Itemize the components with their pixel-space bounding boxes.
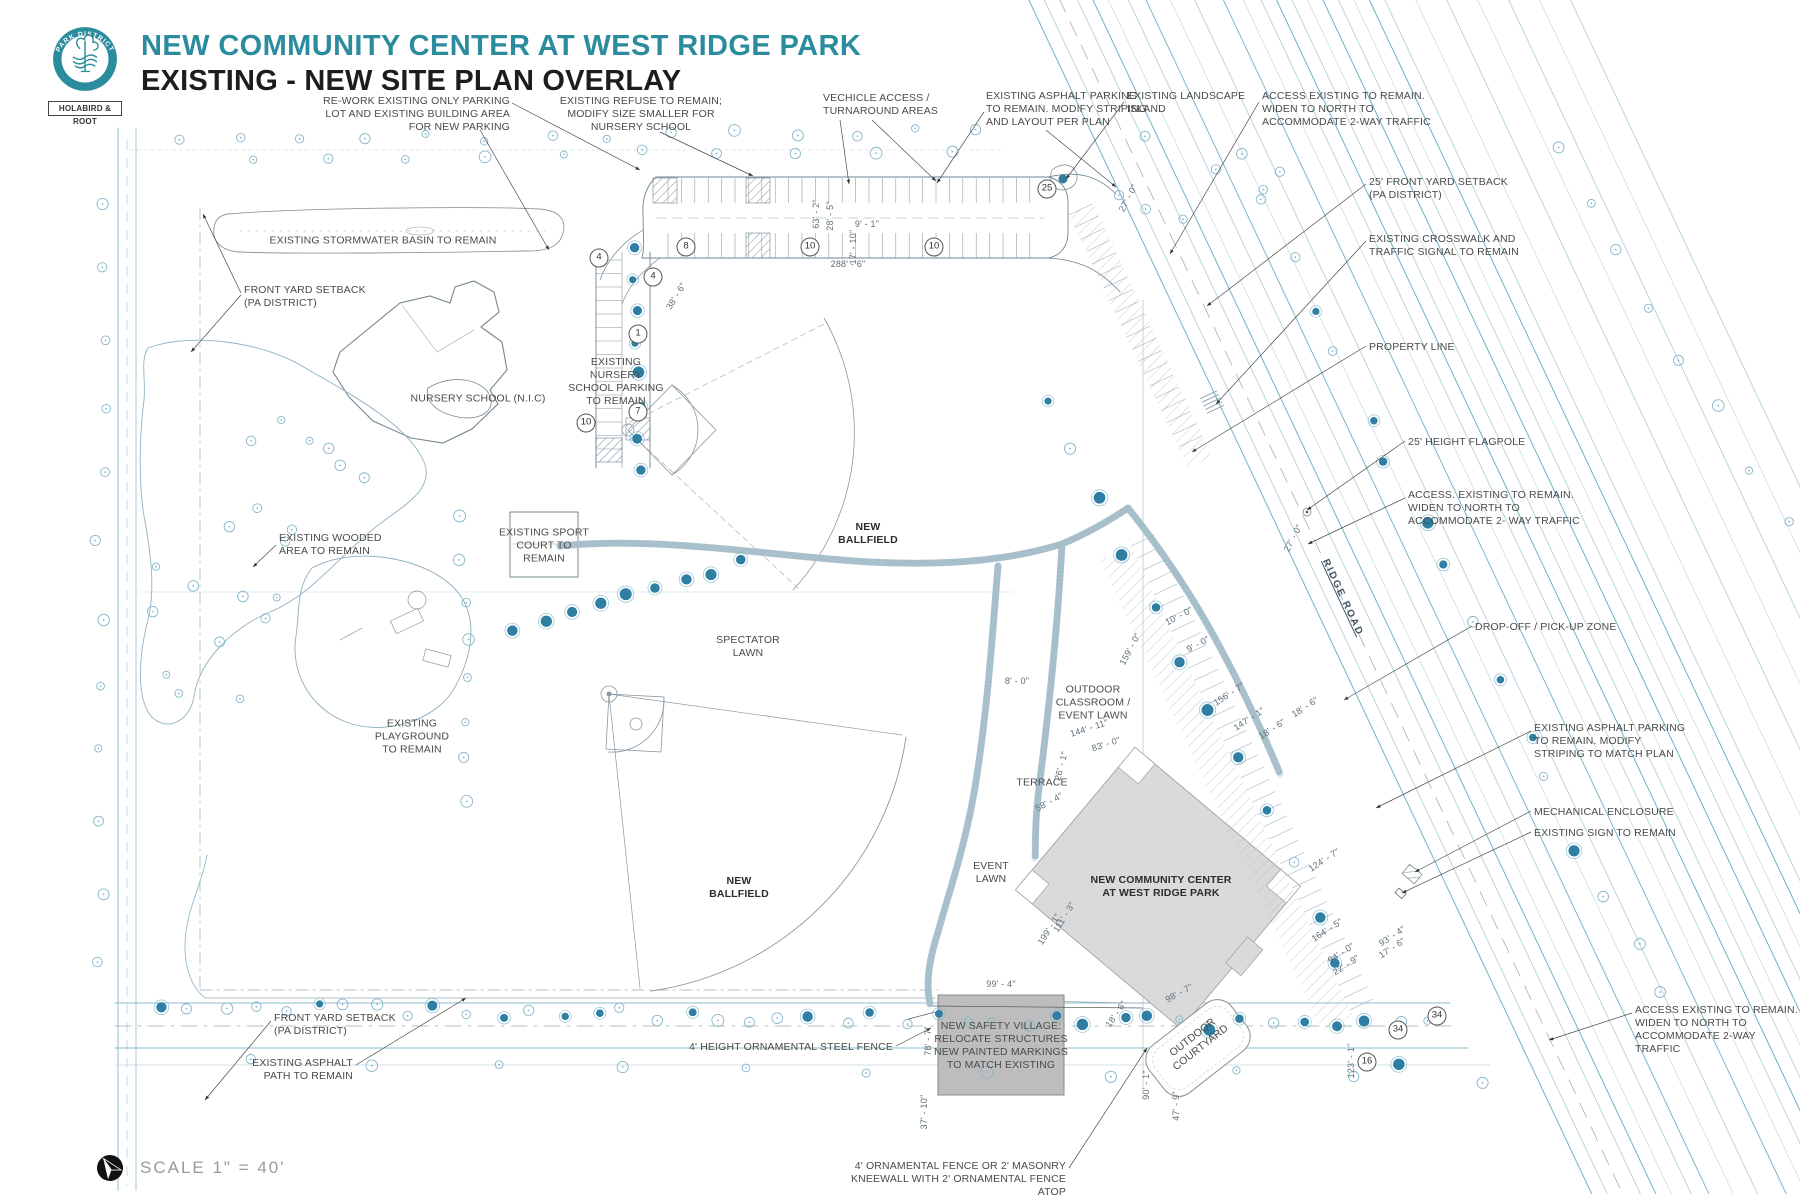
scale-note: SCALE 1" = 40' bbox=[94, 1148, 286, 1188]
title-block: PARK DISTRICT HIGHLAND PARK HOLABIRD & R… bbox=[0, 0, 1100, 125]
site-plan-canvas: EXISTING STORMWATER BASIN TO REMAINNURSE… bbox=[0, 0, 1800, 1194]
firm-badge: HOLABIRD & ROOT bbox=[48, 101, 122, 116]
site-plan-linework bbox=[0, 0, 1800, 1194]
sheet-title: NEW COMMUNITY CENTER AT WEST RIDGE PARK bbox=[141, 30, 861, 63]
sheet-subtitle: EXISTING - NEW SITE PLAN OVERLAY bbox=[141, 65, 681, 98]
static-linework bbox=[115, 128, 1490, 1190]
park-district-logo: PARK DISTRICT HIGHLAND PARK bbox=[46, 20, 124, 98]
scale-label: SCALE 1" = 40' bbox=[140, 1158, 286, 1178]
sheet: { "header": { "title": "NEW COMMUNITY CE… bbox=[0, 0, 1800, 1194]
north-arrow-icon bbox=[94, 1152, 126, 1184]
